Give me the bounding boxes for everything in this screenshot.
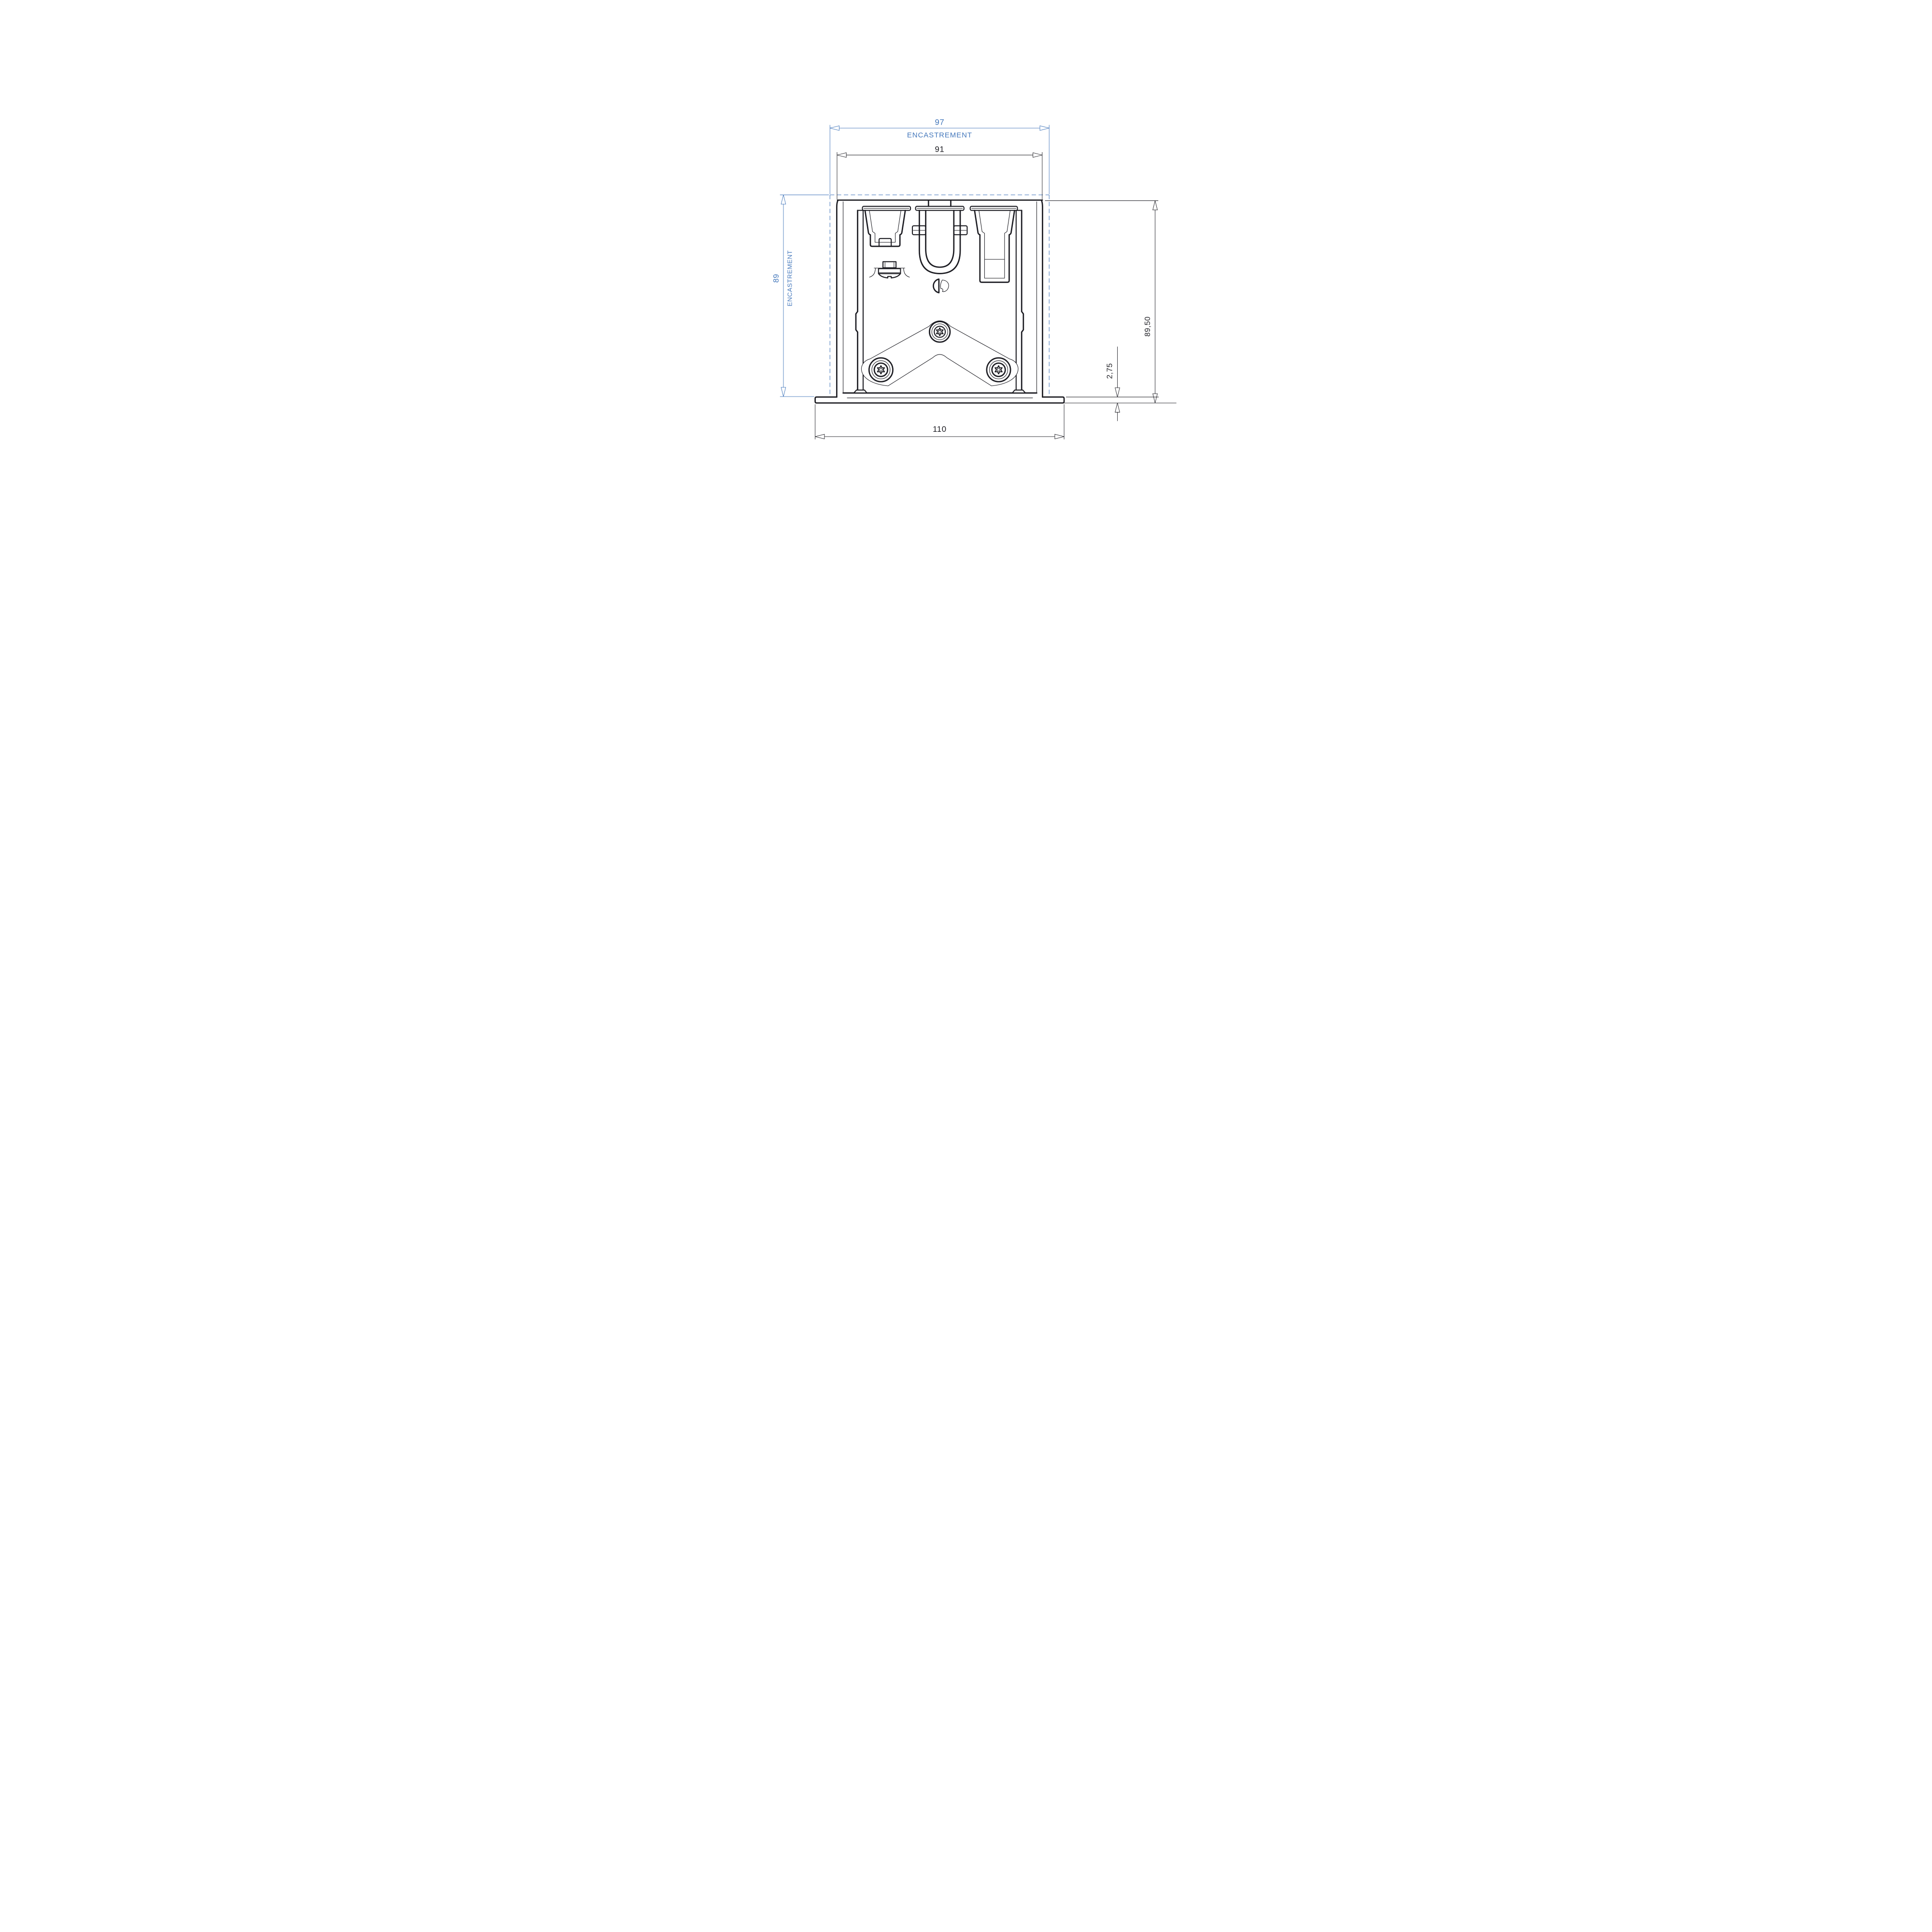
dim-97-label: ENCASTREMENT [907, 131, 972, 139]
carrier-wall-right-outer [1022, 211, 1023, 390]
tooth-left-body [865, 211, 905, 246]
screw-neck-lines [885, 263, 894, 268]
dim-trim-width [815, 404, 1064, 440]
cable-keyhole [933, 279, 949, 293]
arrowhead-left-icon [815, 434, 824, 439]
dim-91-value: 91 [935, 144, 944, 154]
outer-housing-profile [815, 200, 1064, 403]
rail-tooth-right [970, 206, 1018, 282]
torx-screw-right [987, 358, 1010, 382]
keyhole-crescent [940, 280, 949, 292]
arrowhead-up-icon [781, 195, 786, 204]
keyhole-half-disc [933, 279, 938, 293]
dim-2-75-value: 2,75 [1106, 363, 1114, 379]
recessed-profile-section-drawing: 97 ENCASTREMENT 91 89 ENCASTREMENT 89,50… [676, 0, 1256, 580]
center-lamp-channel [912, 200, 967, 273]
arrowhead-up-icon [1115, 403, 1120, 412]
spring-clip-left [869, 268, 876, 277]
inner-carrier-profile [854, 200, 1025, 393]
housing-wall-left [837, 200, 838, 397]
u-channel-inner [926, 211, 954, 268]
dim-89-value: 89 [772, 274, 781, 283]
arrowhead-down-icon [1153, 394, 1158, 403]
dim-89-50-value: 89,50 [1144, 316, 1152, 337]
arrowhead-left-icon [837, 153, 846, 157]
tooth-right-body-inner [979, 211, 1010, 278]
torx-screw-left [869, 358, 893, 382]
spring-clip-right [903, 268, 909, 277]
screw-dome [879, 273, 901, 278]
rail-tooth-left [863, 206, 911, 246]
dimension-texts: 97 ENCASTREMENT 91 89 ENCASTREMENT 89,50… [772, 118, 1152, 434]
retainer-screw-detail [869, 262, 909, 278]
arrowhead-right-icon [1055, 434, 1064, 439]
arrowhead-right-icon [1040, 126, 1049, 130]
dim-97-value: 97 [935, 118, 944, 127]
dim-fixture-width [837, 152, 1042, 199]
carrier-wall-left-outer [856, 211, 858, 390]
dim-flange-thickness [1066, 347, 1159, 421]
arrowhead-right-icon [1033, 153, 1042, 157]
technical-drawing-page: 97 ENCASTREMENT 91 89 ENCASTREMENT 89,50… [676, 0, 1256, 580]
arrowhead-left-icon [830, 126, 839, 130]
arrowhead-up-icon [1153, 201, 1158, 210]
center-tab [928, 200, 951, 206]
arrowhead-down-icon [1115, 388, 1120, 397]
carrier-foot-right [1012, 390, 1025, 393]
dim-89-label: ENCASTREMENT [786, 250, 793, 306]
carrier-foot-left [854, 390, 867, 393]
arrowhead-down-icon [781, 387, 786, 397]
housing-wall-right [1041, 200, 1042, 397]
torx-screw-center [929, 322, 950, 342]
dim-110-value: 110 [933, 425, 947, 434]
tooth-left-body-inner [869, 211, 901, 242]
